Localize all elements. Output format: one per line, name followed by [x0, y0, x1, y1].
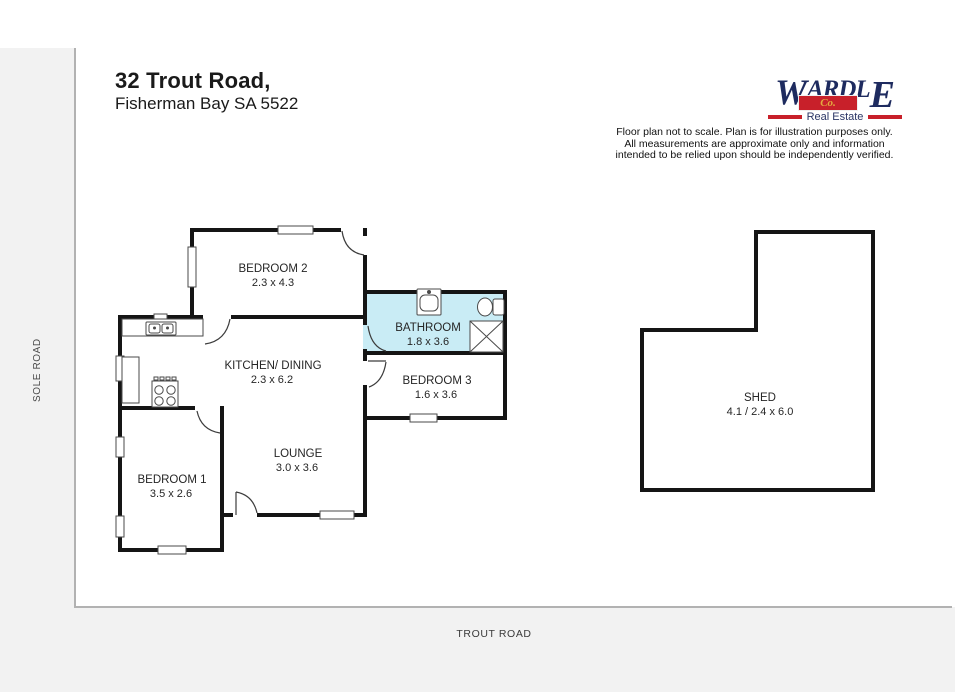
sink-tap-dot-right	[167, 327, 169, 329]
floor-plan: BEDROOM 2 2.3 x 4.3 BATHROOM 1.8 x 3.6 K…	[0, 0, 955, 692]
stove-burner-1	[155, 386, 163, 394]
room-label-bedroom1: BEDROOM 1	[137, 474, 206, 486]
room-dims-kitchen-dining: 2.3 x 6.2	[251, 374, 293, 386]
window-lounge-bottom	[320, 511, 354, 519]
toilet-cistern	[493, 299, 504, 315]
sink-tap-dot-left	[154, 327, 156, 329]
bathroom-sink-basin	[420, 295, 438, 311]
toilet-bowl	[478, 298, 493, 316]
room-label-lounge: LOUNGE	[274, 448, 323, 460]
bathroom-sink-tap	[428, 291, 431, 294]
stove-burner-4	[167, 397, 175, 405]
stove-knob-3	[166, 377, 170, 380]
kitchen-bench	[122, 357, 139, 403]
kitchen-faucet	[154, 314, 167, 319]
room-dims-shed: 4.1 / 2.4 x 6.0	[727, 406, 794, 418]
window-bedroom1-left-lower	[116, 516, 124, 537]
window-bedroom3-bottom	[410, 414, 437, 422]
window-bedroom1-bottom	[158, 546, 186, 554]
window-bedroom1-left-upper	[116, 437, 124, 457]
stove-burner-2	[167, 386, 175, 394]
room-dims-lounge: 3.0 x 3.6	[276, 462, 318, 474]
stove-knob-2	[160, 377, 164, 380]
room-label-bathroom: BATHROOM	[395, 322, 461, 334]
door-arc-bedroom1	[197, 411, 220, 433]
stove-burner-3	[155, 397, 163, 405]
room-label-bedroom2: BEDROOM 2	[238, 263, 307, 275]
stove-knob-4	[172, 377, 176, 380]
room-label-bedroom3: BEDROOM 3	[402, 375, 471, 387]
door-arc-bedroom2-corner	[342, 231, 364, 255]
window-bedroom2-left	[188, 247, 196, 287]
room-label-shed: SHED	[744, 392, 776, 404]
room-dims-bedroom2: 2.3 x 4.3	[252, 277, 294, 289]
room-dims-bathroom: 1.8 x 3.6	[407, 336, 449, 348]
door-arc-lounge-entry	[236, 492, 257, 513]
stove-knob-1	[154, 377, 158, 380]
window-bedroom2-top	[278, 226, 313, 234]
door-arc-bedroom3	[369, 362, 386, 387]
room-dims-bedroom3: 1.6 x 3.6	[415, 389, 457, 401]
walls	[118, 228, 873, 552]
room-dims-bedroom1: 3.5 x 2.6	[150, 488, 192, 500]
door-arc-bedroom2-kitchen	[205, 319, 230, 344]
shed-walls	[642, 232, 873, 490]
room-label-kitchen-dining: KITCHEN/ DINING	[224, 360, 321, 372]
